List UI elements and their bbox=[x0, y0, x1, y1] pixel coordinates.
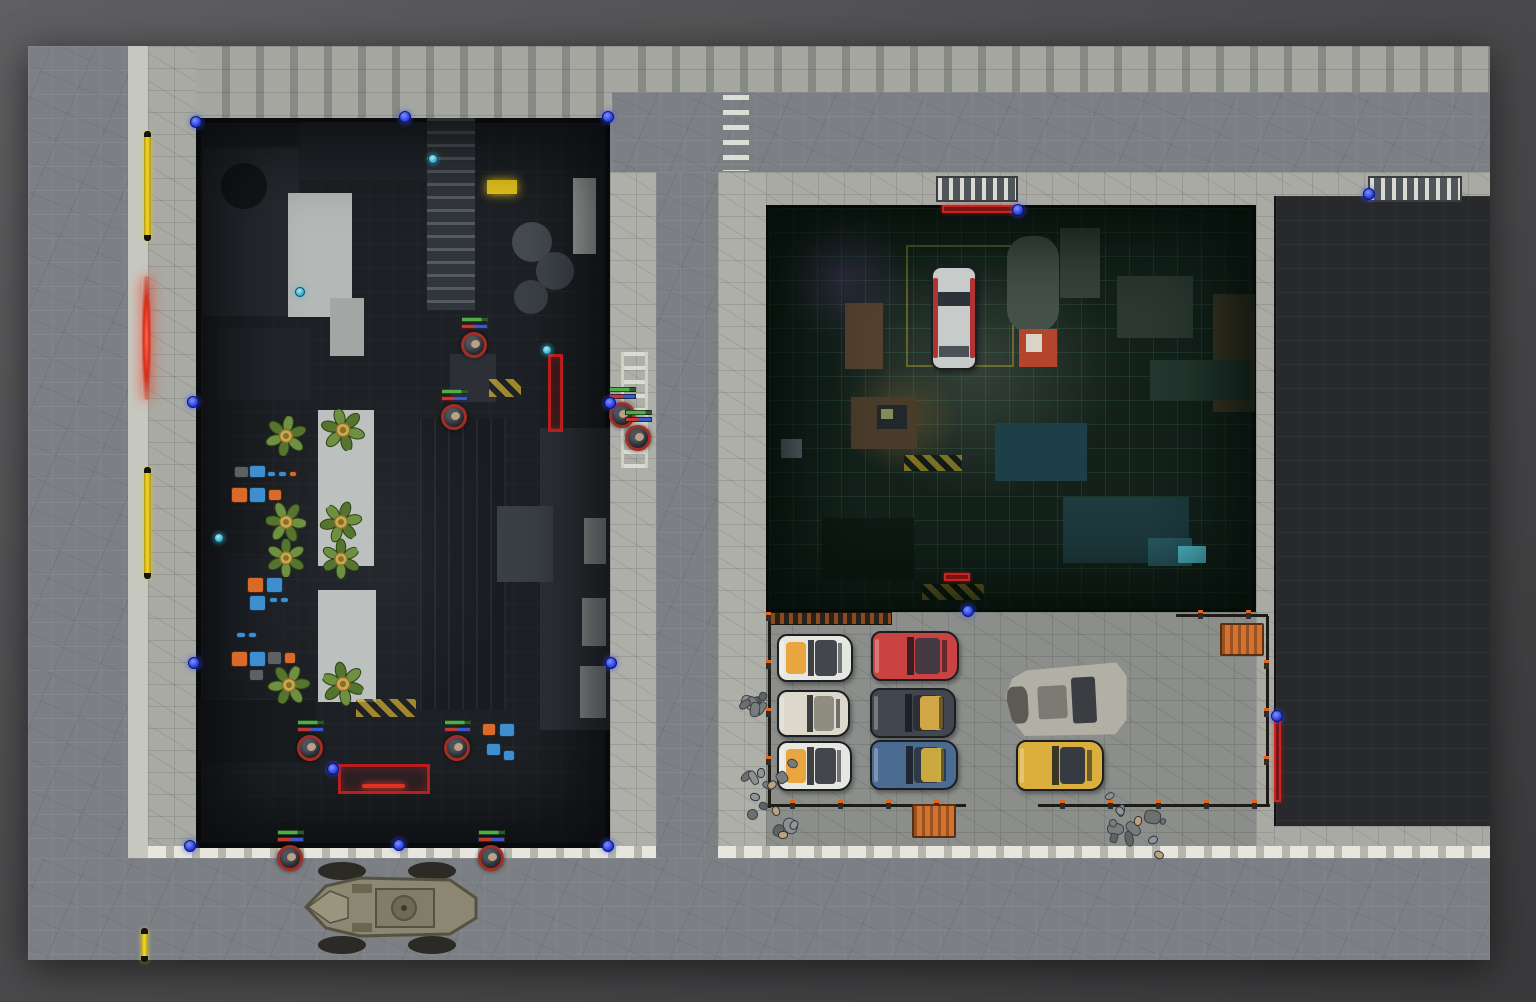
plant-art bbox=[264, 500, 307, 543]
token-portrait bbox=[478, 845, 504, 871]
wall-endpoint[interactable] bbox=[1271, 710, 1283, 722]
door-control-yellow[interactable] bbox=[144, 131, 151, 241]
token-bar-health bbox=[461, 317, 488, 322]
frontage-top-west bbox=[196, 46, 612, 118]
token-portrait bbox=[277, 845, 303, 871]
pave-southeast bbox=[1274, 826, 1490, 848]
wall-endpoint[interactable] bbox=[393, 839, 405, 851]
shop-machine bbox=[499, 723, 515, 737]
fence-post bbox=[766, 612, 771, 621]
car-windshield bbox=[808, 640, 814, 677]
car-roof bbox=[915, 638, 940, 675]
token-face bbox=[453, 742, 464, 752]
shop-machine bbox=[266, 577, 283, 593]
lab-screen bbox=[1178, 546, 1206, 563]
white-pillar bbox=[582, 598, 606, 646]
car-roof bbox=[1060, 747, 1085, 785]
garage-car bbox=[931, 266, 977, 370]
car-bumper bbox=[874, 748, 878, 783]
white-pillar bbox=[584, 518, 606, 564]
token-bar-health bbox=[297, 720, 324, 725]
fence-post bbox=[838, 800, 843, 809]
car-bumper bbox=[874, 696, 878, 731]
parked-car bbox=[777, 690, 850, 737]
door-marker-red-line[interactable] bbox=[942, 205, 1014, 213]
shop-machine bbox=[249, 465, 266, 478]
frontage-top-east bbox=[612, 46, 1490, 92]
car-trim-left bbox=[933, 278, 938, 358]
shop-machine bbox=[289, 471, 297, 477]
fence-post bbox=[766, 756, 771, 765]
wall-endpoint[interactable] bbox=[1363, 188, 1375, 200]
plant-creature-token[interactable] bbox=[264, 500, 307, 543]
car-windshield bbox=[807, 695, 813, 731]
car-windshield bbox=[1052, 746, 1060, 785]
token-face bbox=[634, 432, 645, 442]
car-rear-window bbox=[939, 697, 944, 728]
character-token[interactable] bbox=[277, 830, 305, 874]
parked-car bbox=[870, 688, 956, 738]
car-roof bbox=[815, 748, 836, 785]
token-bar-health bbox=[478, 830, 505, 835]
shop-machine bbox=[278, 471, 287, 477]
shop-machine bbox=[231, 651, 248, 667]
shop-machine bbox=[280, 597, 289, 603]
road-horizontal-bottom bbox=[28, 858, 1490, 960]
fence-post bbox=[1198, 610, 1203, 619]
tanker-vehicle bbox=[1007, 236, 1059, 332]
token-face bbox=[450, 411, 461, 421]
building-black-roof bbox=[1274, 196, 1490, 826]
shop-machine bbox=[482, 723, 496, 736]
character-token[interactable] bbox=[441, 389, 469, 433]
token-face bbox=[487, 852, 498, 862]
fence-line bbox=[1176, 614, 1268, 617]
door-marker-red-line[interactable] bbox=[1274, 718, 1281, 802]
fence-post bbox=[1246, 610, 1251, 619]
parked-car bbox=[777, 634, 853, 682]
parked-car bbox=[1016, 740, 1104, 791]
wall-endpoint[interactable] bbox=[1012, 204, 1024, 216]
hazard-floor bbox=[904, 455, 962, 471]
fence-post bbox=[1156, 800, 1161, 809]
door-marker-red-line[interactable] bbox=[944, 573, 970, 581]
plant-creature-token[interactable] bbox=[267, 539, 305, 577]
character-token[interactable] bbox=[625, 410, 653, 454]
wall-endpoint[interactable] bbox=[605, 657, 617, 669]
guard-rail bbox=[770, 612, 892, 625]
fence-post bbox=[1060, 800, 1065, 809]
fence-post bbox=[1252, 800, 1257, 809]
character-token[interactable] bbox=[297, 720, 325, 764]
wall-endpoint[interactable] bbox=[399, 111, 411, 123]
wall-endpoint[interactable] bbox=[184, 840, 196, 852]
token-portrait bbox=[441, 404, 467, 430]
window-tile bbox=[781, 439, 802, 458]
shop-machine bbox=[267, 471, 276, 477]
machinery-top bbox=[1060, 228, 1100, 298]
truck-windows bbox=[1071, 676, 1098, 724]
token-portrait bbox=[461, 332, 487, 358]
wall-endpoint[interactable] bbox=[602, 111, 614, 123]
shop-machine bbox=[236, 632, 246, 638]
car-rear-window bbox=[836, 699, 840, 728]
car-rear-window bbox=[941, 749, 946, 780]
fence-post bbox=[790, 800, 795, 809]
shop-machine bbox=[234, 466, 249, 478]
truck-detail bbox=[1037, 685, 1068, 719]
sidewalk-mid-east bbox=[718, 172, 766, 960]
token-bar-health bbox=[625, 410, 652, 415]
shop-machine bbox=[486, 743, 501, 756]
wall-endpoint[interactable] bbox=[188, 657, 200, 669]
car-bumper bbox=[875, 639, 879, 674]
car-roof bbox=[814, 696, 835, 730]
token-bar-split bbox=[625, 417, 652, 422]
token-portrait bbox=[444, 735, 470, 761]
fan-machine bbox=[1117, 276, 1193, 338]
shop-machine bbox=[249, 487, 266, 503]
car-windshield bbox=[905, 694, 912, 733]
car-rear-window bbox=[1087, 750, 1092, 782]
car-bumper bbox=[780, 641, 784, 674]
token-bar-split bbox=[297, 727, 324, 732]
parked-car bbox=[871, 631, 959, 681]
fence-post bbox=[766, 708, 771, 717]
door-control-locked-red[interactable] bbox=[142, 276, 151, 400]
car-trim-right bbox=[970, 278, 975, 358]
dark-storage bbox=[822, 518, 914, 580]
sidewalk-left bbox=[148, 46, 196, 960]
shop-machine bbox=[248, 632, 257, 638]
token-portrait bbox=[625, 425, 651, 451]
wall-endpoint[interactable] bbox=[604, 397, 616, 409]
car-windshield bbox=[907, 637, 915, 676]
token-face bbox=[306, 742, 317, 752]
light-source[interactable] bbox=[295, 287, 305, 297]
cloth-table bbox=[995, 423, 1087, 481]
token-portrait bbox=[297, 735, 323, 761]
light-source[interactable] bbox=[214, 533, 224, 543]
hazard-floor bbox=[922, 584, 984, 600]
wall-endpoint[interactable] bbox=[327, 763, 339, 775]
token-bar-split bbox=[277, 837, 304, 842]
dumpster bbox=[1220, 623, 1264, 656]
cart-top bbox=[1026, 334, 1042, 352]
character-token[interactable] bbox=[444, 720, 472, 764]
shop-machine bbox=[503, 750, 515, 761]
shop-machine bbox=[249, 651, 266, 667]
road-vertical-mid bbox=[656, 172, 718, 960]
light-source[interactable] bbox=[542, 345, 552, 355]
fence-gate bbox=[1368, 176, 1462, 202]
car-bumper bbox=[1020, 748, 1024, 784]
wall-endpoint[interactable] bbox=[962, 605, 974, 617]
fence-post bbox=[1264, 708, 1269, 717]
car-rear-window bbox=[942, 640, 947, 671]
shop-machine bbox=[269, 597, 278, 603]
shop-machine bbox=[249, 595, 266, 611]
token-bar-health bbox=[444, 720, 471, 725]
car-windshield bbox=[938, 292, 970, 306]
fence-post bbox=[1264, 660, 1269, 669]
plant-art bbox=[263, 413, 309, 459]
door-marker-red-rect[interactable] bbox=[338, 764, 430, 794]
monitor-screen bbox=[881, 409, 893, 419]
token-face bbox=[286, 852, 297, 862]
pedestrian-figure bbox=[757, 768, 765, 778]
fence-gate bbox=[936, 176, 1018, 202]
apc-art bbox=[298, 860, 488, 956]
car-roof bbox=[815, 640, 837, 675]
wall-endpoint[interactable] bbox=[190, 116, 202, 128]
bench-right bbox=[1150, 360, 1250, 400]
fence-post bbox=[886, 800, 891, 809]
fence-post bbox=[1204, 800, 1209, 809]
token-bar-split bbox=[478, 837, 505, 842]
fence-line bbox=[1038, 804, 1270, 807]
vtt-scene-canvas[interactable] bbox=[0, 0, 1536, 1002]
plant-creature-token[interactable] bbox=[263, 413, 309, 459]
wall-endpoint[interactable] bbox=[602, 840, 614, 852]
parked-car bbox=[870, 740, 958, 790]
car-rear-window bbox=[837, 750, 841, 781]
wall-endpoint[interactable] bbox=[187, 396, 199, 408]
token-bar-split bbox=[441, 396, 468, 401]
shop-machine bbox=[268, 489, 282, 501]
fence-post bbox=[766, 660, 771, 669]
token-bar-health bbox=[441, 389, 468, 394]
car-hood-accent bbox=[786, 642, 806, 674]
shelf-unit bbox=[845, 303, 883, 369]
door-marker-red-rect[interactable] bbox=[548, 354, 563, 432]
vent-circle bbox=[221, 163, 267, 209]
car-rear-window bbox=[838, 643, 842, 673]
tank-circle bbox=[514, 280, 548, 314]
conveyor-belt bbox=[427, 118, 475, 310]
token-bar-health bbox=[609, 387, 636, 392]
sidewalk-mid-west bbox=[610, 172, 656, 960]
token-bar-split bbox=[444, 727, 471, 732]
lamp-yellow bbox=[487, 180, 517, 194]
plant-art bbox=[267, 539, 305, 577]
car-windshield bbox=[807, 747, 813, 786]
shop-machine bbox=[231, 487, 248, 503]
door-control-yellow[interactable] bbox=[141, 928, 148, 962]
light-source[interactable] bbox=[428, 154, 438, 164]
fence-post bbox=[1264, 756, 1269, 765]
apc-vehicle-token[interactable] bbox=[298, 860, 488, 956]
shop-machine bbox=[247, 577, 264, 593]
token-face bbox=[470, 339, 481, 349]
crosswalk bbox=[723, 95, 749, 171]
curb-bottom-east bbox=[718, 846, 1490, 858]
token-bar-health bbox=[277, 830, 304, 835]
road-vertical-left bbox=[28, 46, 128, 960]
token-bar-split bbox=[461, 324, 488, 329]
car-bumper bbox=[780, 697, 783, 730]
white-shelf bbox=[573, 178, 596, 254]
character-token[interactable] bbox=[461, 317, 489, 361]
white-counter-small bbox=[330, 298, 364, 356]
door-marker-glow bbox=[362, 784, 405, 788]
fence-post bbox=[1108, 800, 1113, 809]
dumpster bbox=[912, 804, 956, 838]
car-windshield bbox=[906, 746, 914, 785]
shop-machine bbox=[249, 669, 264, 681]
door-control-yellow[interactable] bbox=[144, 467, 151, 579]
white-pillar bbox=[580, 666, 606, 718]
car-rear-window bbox=[939, 346, 969, 357]
character-token[interactable] bbox=[478, 830, 506, 874]
